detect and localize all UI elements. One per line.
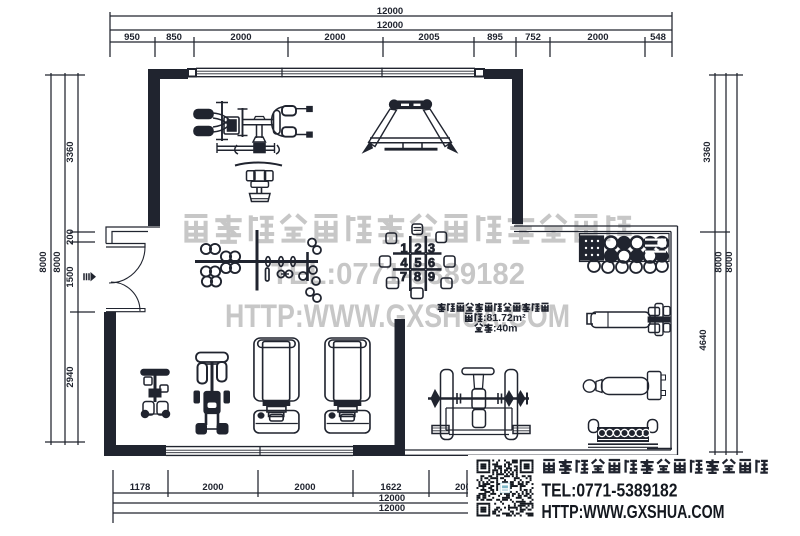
svg-text:8000: 8000 — [724, 251, 735, 272]
svg-text:12000: 12000 — [379, 503, 405, 514]
svg-text:1500: 1500 — [65, 266, 76, 287]
svg-text:1178: 1178 — [130, 482, 151, 493]
svg-text:2000: 2000 — [294, 482, 315, 493]
svg-text:200: 200 — [65, 229, 76, 245]
svg-text:8000: 8000 — [714, 251, 725, 272]
svg-text:2: 2 — [414, 241, 421, 256]
svg-text:9: 9 — [428, 269, 435, 284]
svg-text:8000: 8000 — [38, 251, 49, 272]
svg-text:2000: 2000 — [587, 32, 608, 43]
svg-text:3360: 3360 — [65, 141, 76, 162]
svg-text:8000: 8000 — [52, 251, 63, 272]
svg-text:752: 752 — [525, 32, 541, 43]
svg-text:3360: 3360 — [702, 141, 713, 162]
svg-text:8: 8 — [414, 269, 421, 284]
svg-text:1: 1 — [400, 241, 407, 256]
svg-text::40m: :40m — [493, 323, 518, 335]
svg-text:2940: 2940 — [65, 366, 76, 387]
svg-text:895: 895 — [487, 32, 504, 43]
svg-text:548: 548 — [650, 32, 666, 43]
svg-text:7: 7 — [400, 269, 407, 284]
svg-text:1622: 1622 — [380, 482, 401, 493]
svg-text:HTTP:WWW.GXSHUA.COM: HTTP:WWW.GXSHUA.COM — [542, 501, 725, 522]
svg-text:2005: 2005 — [418, 32, 440, 43]
svg-text:4: 4 — [400, 255, 408, 270]
svg-text:950: 950 — [124, 32, 140, 43]
svg-text:4640: 4640 — [698, 329, 709, 350]
svg-text:12000: 12000 — [377, 6, 403, 17]
svg-text:850: 850 — [166, 32, 182, 43]
svg-text:2000: 2000 — [202, 482, 223, 493]
svg-text:2000: 2000 — [230, 32, 251, 43]
svg-text:12000: 12000 — [377, 20, 403, 31]
svg-text:3: 3 — [428, 241, 435, 256]
svg-text:6: 6 — [428, 255, 435, 270]
svg-text:2000: 2000 — [324, 32, 345, 43]
svg-text:5: 5 — [414, 255, 421, 270]
svg-text:TEL:0771-5389182: TEL:0771-5389182 — [542, 480, 678, 501]
